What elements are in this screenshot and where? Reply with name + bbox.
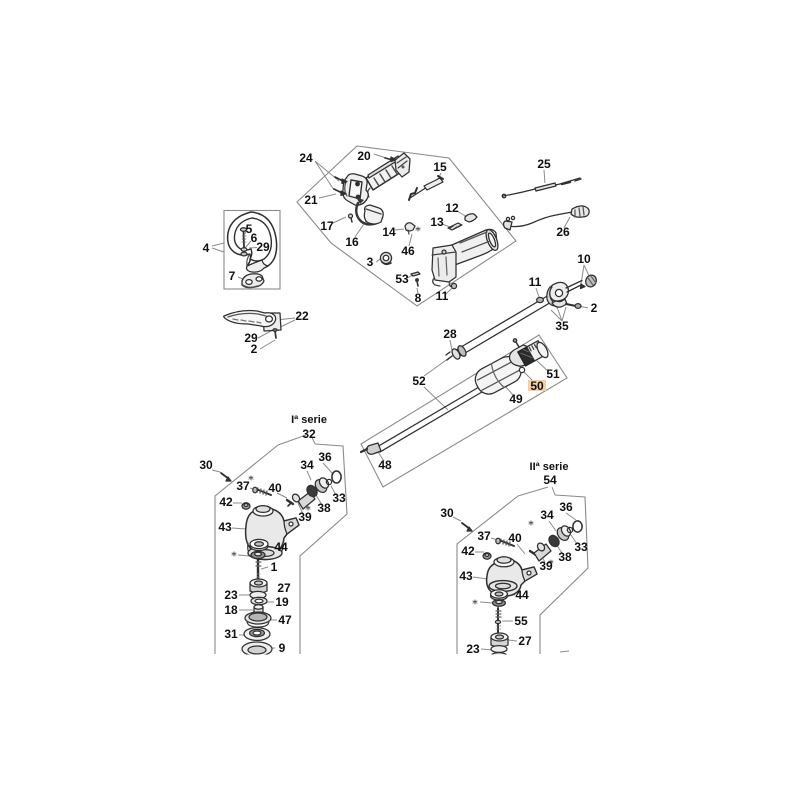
svg-text:32: 32	[302, 427, 316, 441]
svg-text:12: 12	[445, 201, 459, 215]
svg-text:IIª serie: IIª serie	[530, 461, 569, 473]
svg-text:22: 22	[295, 309, 309, 323]
svg-text:11: 11	[529, 275, 542, 289]
svg-text:17: 17	[320, 219, 334, 233]
svg-text:43: 43	[218, 520, 232, 534]
svg-text:39: 39	[539, 559, 553, 573]
svg-text:52: 52	[412, 374, 426, 388]
svg-text:21: 21	[304, 193, 318, 207]
svg-text:38: 38	[317, 501, 331, 515]
svg-text:24: 24	[299, 151, 313, 165]
svg-text:7: 7	[229, 269, 236, 283]
svg-text:29: 29	[256, 240, 270, 254]
svg-text:4: 4	[203, 241, 210, 255]
svg-text:19: 19	[275, 595, 289, 609]
svg-text:42: 42	[461, 544, 475, 558]
svg-text:51: 51	[546, 367, 560, 381]
svg-text:3: 3	[367, 255, 374, 269]
svg-text:44: 44	[515, 588, 529, 602]
svg-text:36: 36	[559, 500, 573, 514]
svg-text:20: 20	[357, 149, 371, 163]
svg-text:34: 34	[540, 508, 554, 522]
svg-text:33: 33	[332, 491, 346, 505]
svg-text:43: 43	[459, 569, 473, 583]
svg-text:14: 14	[382, 225, 396, 239]
svg-text:34: 34	[300, 458, 314, 472]
svg-text:31: 31	[224, 627, 238, 641]
svg-text:26: 26	[556, 225, 570, 239]
svg-text:1: 1	[271, 560, 278, 574]
svg-text:8: 8	[415, 291, 422, 305]
svg-text:9: 9	[279, 641, 286, 655]
svg-text:33: 33	[574, 540, 588, 554]
svg-text:46: 46	[401, 244, 415, 258]
svg-text:18: 18	[224, 603, 238, 617]
svg-text:2: 2	[251, 342, 258, 356]
svg-text:23: 23	[224, 588, 238, 602]
svg-text:30: 30	[199, 458, 213, 472]
svg-text:30: 30	[440, 506, 454, 520]
svg-text:40: 40	[268, 481, 282, 495]
svg-text:28: 28	[443, 327, 457, 341]
svg-text:40: 40	[508, 531, 522, 545]
svg-text:16: 16	[345, 235, 359, 249]
svg-text:50: 50	[530, 379, 544, 393]
svg-text:47: 47	[278, 613, 292, 627]
svg-text:38: 38	[558, 550, 572, 564]
svg-text:25: 25	[537, 157, 551, 171]
svg-text:35: 35	[555, 319, 569, 333]
svg-text:23: 23	[466, 642, 480, 656]
svg-text:15: 15	[433, 160, 447, 174]
svg-text:13: 13	[430, 215, 444, 229]
svg-text:10: 10	[577, 252, 591, 266]
svg-text:44: 44	[274, 540, 288, 554]
svg-text:39: 39	[298, 510, 312, 524]
svg-text:37: 37	[477, 529, 491, 543]
svg-text:27: 27	[277, 581, 291, 595]
svg-text:48: 48	[378, 458, 392, 472]
svg-text:11: 11	[436, 289, 449, 303]
svg-text:54: 54	[543, 473, 557, 487]
svg-text:49: 49	[509, 392, 523, 406]
svg-text:Iª serie: Iª serie	[291, 414, 327, 426]
svg-text:2: 2	[591, 301, 598, 315]
svg-text:53: 53	[395, 272, 409, 286]
svg-text:42: 42	[219, 495, 233, 509]
svg-text:55: 55	[514, 614, 528, 628]
svg-text:37: 37	[236, 479, 250, 493]
svg-text:36: 36	[318, 450, 332, 464]
svg-text:27: 27	[518, 634, 532, 648]
